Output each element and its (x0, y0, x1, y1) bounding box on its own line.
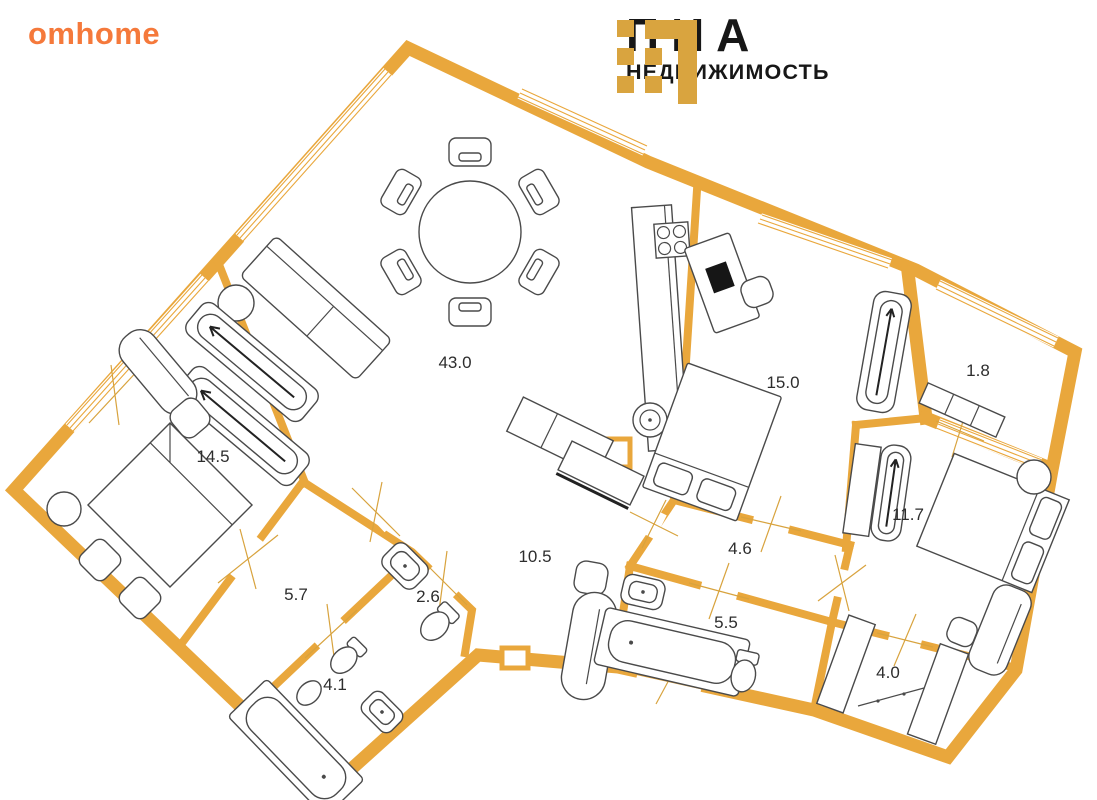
room-area-label: 10.5 (518, 547, 551, 566)
room-area-label: 4.6 (728, 539, 752, 558)
dining-table (419, 181, 521, 283)
pouf (1017, 460, 1051, 494)
furniture (47, 138, 1069, 800)
room-area-label: 5.5 (714, 613, 738, 632)
floor-plan-page: omhome ПИА НЕДВИЖИМОСТЬ (0, 0, 1097, 800)
room-area-label: 2.6 (416, 587, 440, 606)
nightstand (116, 574, 164, 622)
floor-plan-svg: 43.014.515.01.811.710.54.65.72.65.54.04.… (0, 0, 1097, 800)
bidet (292, 676, 326, 710)
nightstand (76, 536, 124, 584)
room-area-label: 4.1 (323, 675, 347, 694)
room-area-label: 14.5 (196, 447, 229, 466)
room-area-label: 15.0 (766, 373, 799, 392)
bench (572, 559, 609, 596)
room-area-label: 4.0 (876, 663, 900, 682)
toilet (415, 600, 461, 646)
room-area-label: 1.8 (966, 361, 990, 380)
room-area-label: 11.7 (892, 505, 924, 524)
sliding-wardrobe (855, 290, 913, 415)
stool (47, 492, 81, 526)
closet-section (907, 644, 968, 744)
room-area-label: 5.7 (284, 585, 308, 604)
duct-shaft (502, 648, 528, 668)
bathtub (228, 679, 364, 800)
room-area-label: 43.0 (438, 353, 471, 372)
hanging-rod (858, 688, 924, 706)
